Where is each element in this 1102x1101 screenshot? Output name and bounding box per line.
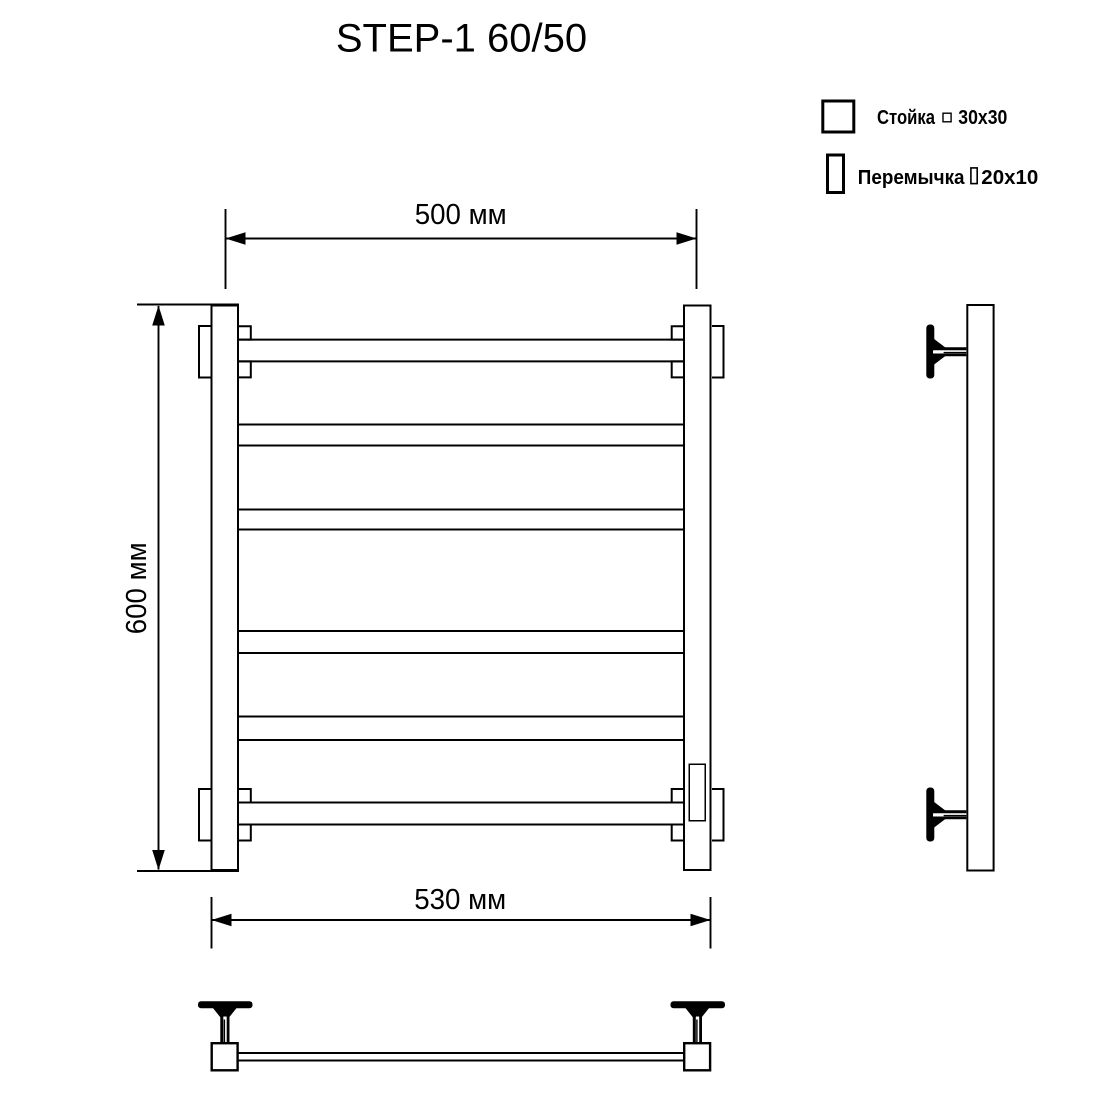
svg-text:500 мм: 500 мм <box>415 198 507 231</box>
svg-text:530 мм: 530 мм <box>414 883 506 916</box>
svg-text:600 мм: 600 мм <box>120 542 153 634</box>
svg-text:Стойка: Стойка <box>877 105 936 128</box>
svg-text:Перемычка: Перемычка <box>858 166 966 189</box>
svg-text:STEP-1 60/50: STEP-1 60/50 <box>336 16 587 60</box>
svg-text:30x30: 30x30 <box>958 107 1007 130</box>
svg-text:20x10: 20x10 <box>981 166 1038 189</box>
